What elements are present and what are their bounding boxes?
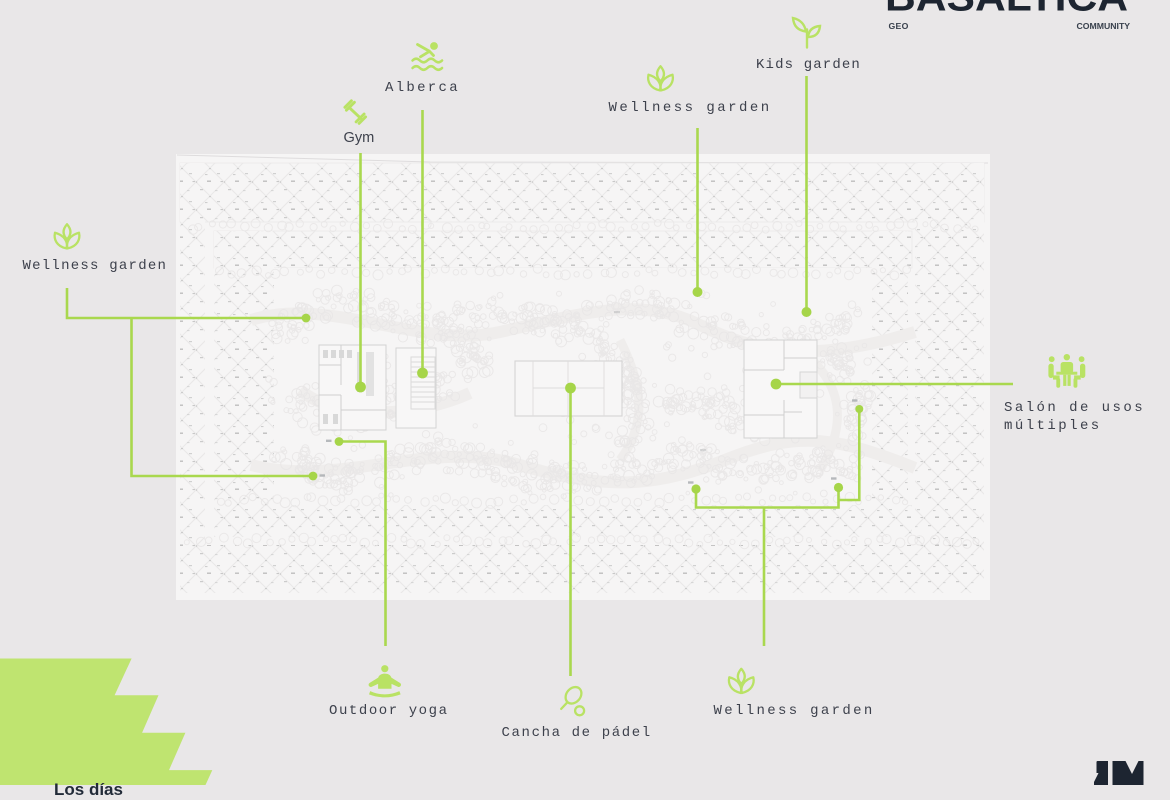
svg-text:BASALTICA: BASALTICA (885, 0, 1128, 13)
